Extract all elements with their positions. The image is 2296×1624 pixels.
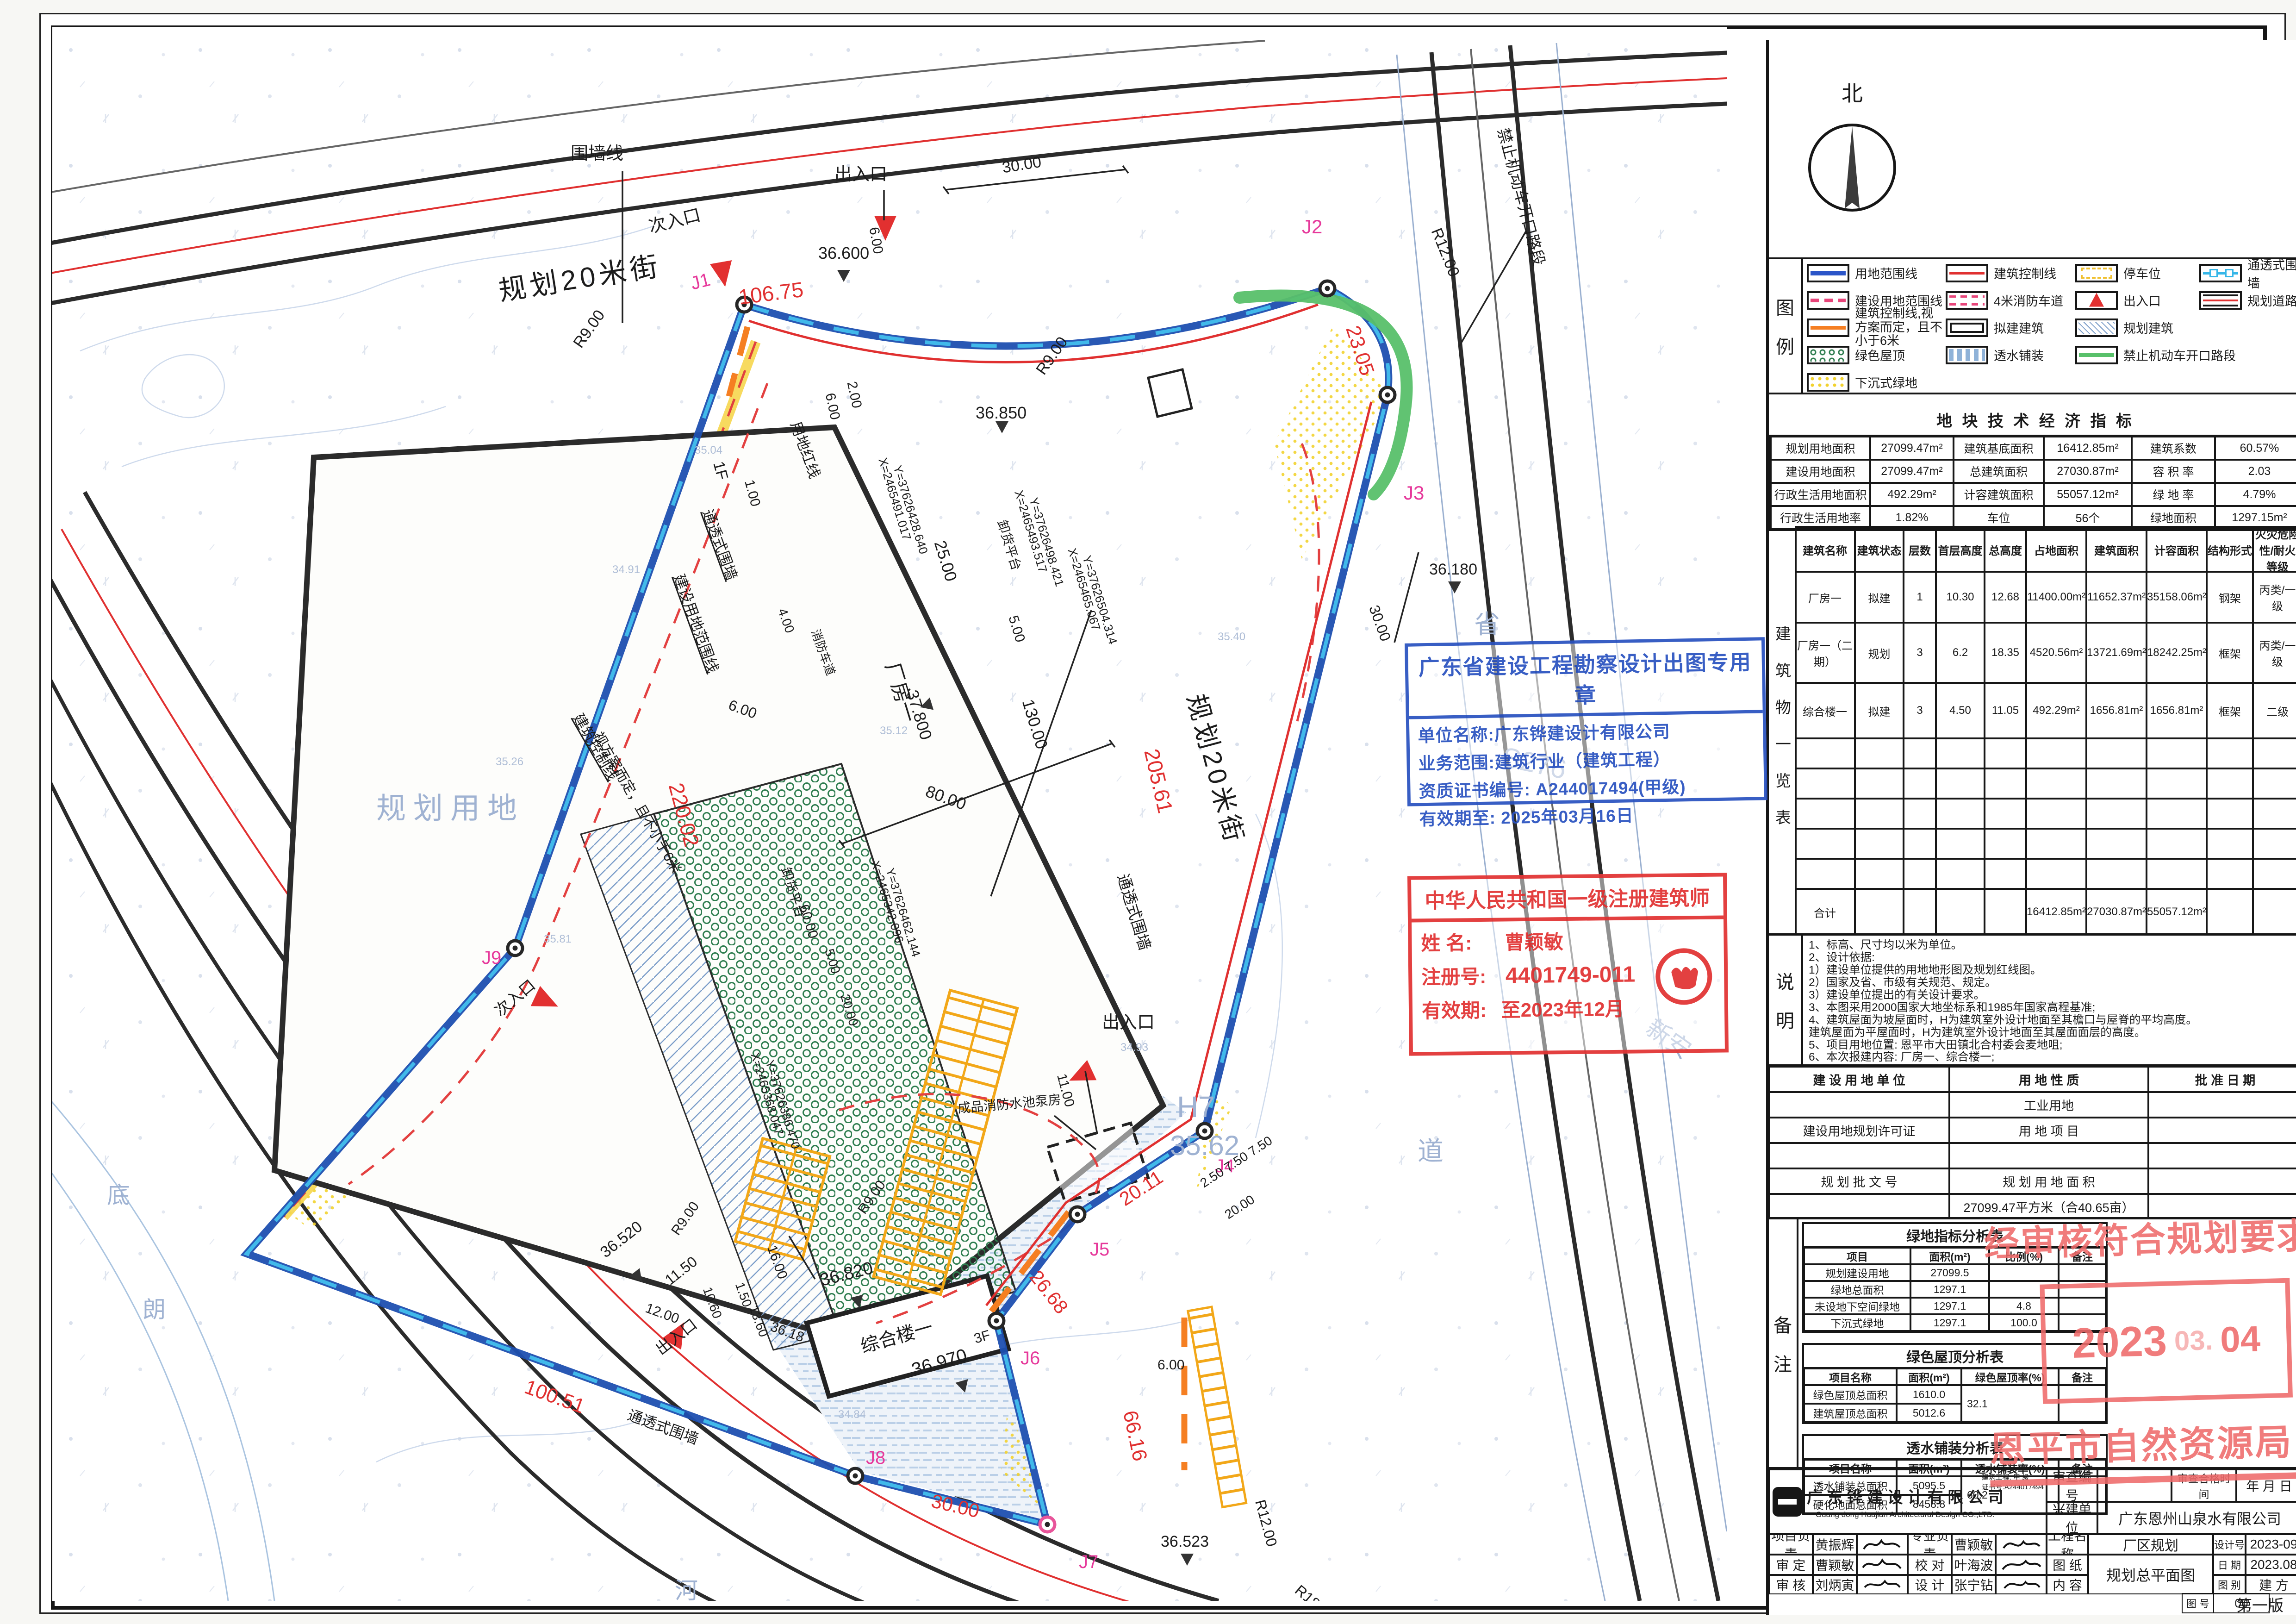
tech-cell: 2.03 (2215, 460, 2296, 483)
bl-cell: 综合楼一 (1795, 683, 1855, 738)
note-line: 1、标高、尺寸均以米为单位。 (1809, 939, 2296, 952)
lu-cell: 用 地 性 质 (1949, 1067, 2148, 1092)
tech-indicators: 地 块 技 术 经 济 指 标 规划用地面积27099.47m²建筑基底面积16… (1769, 406, 2296, 526)
bl-cell: 拟建 (1855, 683, 1904, 738)
note-line: 1）建设单位提供的用地地形图及规划红线图。 (1809, 964, 2296, 977)
plan-label: 省 (1474, 611, 1500, 638)
tech-cell: 建筑系数 (2132, 437, 2215, 460)
plan-label: J5 (1090, 1240, 1109, 1259)
note-line: 6、本次报建内容: 厂房一、综合楼一; (1809, 1051, 2296, 1064)
rt-cell: 面积(m²) (1897, 1368, 1961, 1385)
plan-label: J7 (1079, 1552, 1098, 1572)
tech-cell: 绿 地 率 (2132, 483, 2215, 506)
remark-side-char: 备 (1773, 1311, 1792, 1337)
title-block: 广 东 铧 建 设 计 有 限 公 司 Guang dong Huajian A… (1769, 1467, 2296, 1592)
role-label: 校 对 (1908, 1555, 1952, 1575)
lu-cell (2148, 1118, 2296, 1143)
bl-cell: 11652.37m² (2086, 572, 2147, 623)
bl-cell: 18.35 (1985, 623, 2026, 683)
planned-building-swatch-icon (2075, 319, 2118, 337)
signature (1996, 1555, 2047, 1575)
legend-item: 停车位 (2075, 264, 2199, 282)
architect-reg-no: 4401749-011 (1506, 962, 1636, 988)
bl-cell: 拟建 (1855, 572, 1904, 623)
bl-cell: 丙类/一级 (2253, 572, 2296, 623)
legend-label: 4米消防车道 (1994, 291, 2063, 309)
role-label: 专业负责 (1908, 1534, 1952, 1555)
rt-cell: 项目名称 (1804, 1368, 1897, 1385)
bl-cell: 1656.81m² (2086, 683, 2147, 738)
design-no-label: 设计号 (2213, 1534, 2246, 1555)
bl-total: 27030.87m² (2086, 889, 2147, 935)
project-name-label: 工程名称 (2047, 1534, 2088, 1555)
legend-item: 建筑控制线 (1946, 264, 2075, 282)
legend-label: 建筑控制线,视方案而定，且不小于6米 (1855, 307, 1943, 348)
bl-cell: 13721.69m² (2086, 623, 2147, 683)
approval-year: 2023 (2072, 1317, 2167, 1368)
legend-item: 透水铺装 (1946, 346, 2075, 364)
legend-label: 通透式围墙 (2247, 255, 2296, 291)
bl-cell: 492.29m² (2026, 683, 2086, 738)
building-list: 建 筑 物 一 览 表 建筑名称 建筑状态 层数 首层高度 总高度 占地面积 建… (1769, 526, 2296, 933)
bl-total-label: 合计 (1795, 889, 1855, 935)
legend-label: 规划道路 (2247, 291, 2296, 309)
bl-cell: 厂房一 (1795, 572, 1855, 623)
stamp-field-label: 姓 名: (1421, 932, 1472, 954)
plan-label: J8 (866, 1448, 885, 1468)
lu-cell (1769, 1194, 1949, 1219)
notes-side-label: 说 明 (1769, 936, 1803, 1064)
no-opening-swatch-icon (2075, 346, 2118, 364)
lu-cell (2148, 1092, 2296, 1118)
company-name-cn: 广 东 铧 建 设 计 有 限 公 司 (1807, 1485, 2004, 1507)
remark-side-label: 备 注 (1769, 1219, 1798, 1467)
role-label: 设 计 (1908, 1575, 1952, 1594)
bl-cell: 12.68 (1985, 572, 2026, 623)
lu-cell: 建设用地规划许可证 (1769, 1118, 1949, 1143)
role-label: 项目负责 (1769, 1534, 1813, 1555)
gt-cell: 未设地下空间绿地 (1804, 1298, 1910, 1314)
lu-cell (1769, 1092, 1949, 1118)
bl-cell: 1656.81m² (2147, 683, 2207, 738)
bl-cell: 框架 (2207, 623, 2253, 683)
owner-label: 兴建单位 (2047, 1502, 2097, 1534)
note-line: 3）建设单位提出的有关设计要求。 (1809, 989, 2296, 1002)
legend-item: 通透式围墙 (2199, 255, 2296, 291)
tech-cell: 27099.47m² (1870, 460, 1954, 483)
bl-header: 占地面积 (2026, 528, 2086, 572)
rt-cell: 建筑屋顶总面积 (1804, 1404, 1897, 1422)
approval-day: 04 (2220, 1318, 2261, 1361)
approval-text: 经审核符合规划要求 (1983, 1206, 2296, 1267)
bl-cell: 6.2 (1936, 623, 1985, 683)
legend-item: 出入口 (2075, 291, 2199, 310)
legend-item: 禁止机动车开口路段 (2075, 346, 2296, 364)
spot-elevation: 34.93 (1120, 1042, 1148, 1053)
gt-cell: 1297.1 (1910, 1281, 1989, 1298)
bl-cell: 4.50 (1936, 683, 1985, 738)
content-label: 内 容 (2047, 1575, 2088, 1594)
north-label: 北 (1801, 77, 1903, 107)
plan-label: J9 (482, 948, 501, 968)
bl-cell: 18242.25m² (2147, 623, 2207, 683)
stamp-title: 广东省建设工程勘察设计出图专用章 (1408, 640, 1763, 719)
rt-cell: 1610.0 (1897, 1385, 1961, 1404)
role-name: 张宁钻 (1952, 1575, 1996, 1594)
spot-elevation: 35.04 (695, 444, 722, 456)
legend-item: 下沉式绿地 (1807, 373, 1946, 392)
bl-header: 建筑名称 (1795, 528, 1855, 572)
bl-cell: 35158.06m² (2147, 572, 2207, 623)
notes-side-char: 明 (1776, 1006, 1794, 1033)
lu-cell (2148, 1168, 2296, 1194)
control-line-6m-swatch-icon (1807, 319, 1849, 337)
category-label: 图 别 (2213, 1575, 2246, 1594)
role-name: 叶海波 (1952, 1555, 1996, 1575)
gt-cell: 绿地总面积 (1804, 1281, 1910, 1298)
date-label: 日 期 (2213, 1555, 2246, 1575)
design-no: 2023-09 (2246, 1534, 2296, 1555)
legend-item: 绿色屋顶 (1807, 346, 1946, 364)
permeable-swatch-icon (1946, 346, 1988, 364)
tech-cell: 4.79% (2215, 483, 2296, 506)
note-line: 3、本图采用2000国家大地坐标系和1985年国家高程基准; (1809, 1002, 2296, 1014)
bl-cell: 丙类/一级 (2253, 623, 2296, 683)
signature (1857, 1555, 1908, 1575)
lu-cell (2148, 1143, 2296, 1168)
role-name: 黄振辉 (1813, 1534, 1857, 1555)
design-output-stamp: 广东省建设工程勘察设计出图专用章 单位名称:广东铧建设计有限公司 业务范围:建筑… (1405, 637, 1767, 806)
bl-cell: 4520.56m² (2026, 623, 2086, 683)
unloading-platform (1148, 369, 1192, 417)
tech-cell: 计容建筑面积 (1954, 483, 2044, 506)
date-value: 2023.08 (2246, 1555, 2296, 1575)
sheet-no-label: 图 号 (2182, 1593, 2214, 1613)
remark-side-char: 注 (1773, 1349, 1792, 1376)
note-line: 2、设计依据: (1809, 952, 2296, 964)
control-line-swatch-icon (1946, 264, 1988, 282)
tech-cell: 16412.85m² (2044, 437, 2132, 460)
gt-cell: 下沉式绿地 (1804, 1314, 1910, 1331)
bl-header: 总高度 (1985, 528, 2026, 572)
bl-header: 层数 (1904, 528, 1936, 572)
bl-cell: 1 (1904, 572, 1936, 623)
bl-total: 55057.12m² (2147, 889, 2207, 935)
gt-cell: 规划建设用地 (1804, 1264, 1910, 1281)
proposed-building-swatch-icon (1946, 319, 1988, 337)
role-name: 曹颖敏 (1813, 1555, 1857, 1575)
spot-elevation: 34.84 (838, 1409, 866, 1420)
bl-cell: 厂房一（二期） (1795, 623, 1855, 683)
legend-item: 规划道路 (2199, 291, 2296, 310)
legend-label: 透水铺装 (1994, 346, 2044, 364)
legend-item: 拟建建筑 (1946, 319, 2075, 337)
approval-month: 03. (2174, 1324, 2213, 1357)
legend-label: 出入口 (2123, 291, 2161, 309)
bl-total: 16412.85m² (2026, 889, 2086, 935)
legend-title-char: 例 (1776, 332, 1794, 359)
owner-name: 广东恩州山泉水有限公司 (2097, 1502, 2296, 1534)
company-logo-icon (1773, 1487, 1802, 1517)
spot-elevation: 35.81 (544, 933, 572, 945)
tech-cell: 规划用地面积 (1771, 437, 1870, 460)
building-list-side-label: 建 筑 物 一 览 表 (1769, 526, 1797, 933)
lu-cell: 用 地 项 目 (1949, 1118, 2148, 1143)
landuse-table: 建 设 用 地 单 位用 地 性 质批 准 日 期 工业用地 建设用地规划许可证… (1769, 1064, 2296, 1217)
legend-label: 禁止机动车开口路段 (2123, 346, 2236, 364)
legend-item: 4米消防车道 (1946, 291, 2075, 310)
legend-item: 规划建筑 (2075, 319, 2199, 337)
note-line: 5、项目用地位置: 恩平市大田镇北合村委会麦地咀; (1809, 1039, 2296, 1052)
fire-lane-swatch-icon (1946, 291, 1988, 310)
construction-boundary-swatch-icon (1807, 291, 1849, 310)
tech-cell: 55057.12m² (2044, 483, 2132, 506)
role-label: 审 定 (1769, 1555, 1813, 1575)
lu-cell: 规 划 用 地 面 积 (1949, 1168, 2148, 1194)
parking-swatch-icon (2075, 264, 2118, 282)
edition-label: 第一版 (2236, 1593, 2284, 1616)
signature (1996, 1534, 2047, 1555)
plan-label: 36.523 (1161, 1534, 1209, 1550)
category-value: 建 方 (2246, 1575, 2296, 1594)
spot-elevation: 35.12 (880, 725, 908, 737)
legend-label: 停车位 (2123, 264, 2161, 282)
plan-label: 36.600 (818, 244, 869, 262)
tech-cell: 容 积 率 (2132, 460, 2215, 483)
legend-label: 下沉式绿地 (1855, 373, 1917, 391)
notes-side-char: 说 (1776, 967, 1794, 994)
bl-header: 建筑面积 (2086, 528, 2147, 572)
gt-cell: 项目 (1804, 1248, 1910, 1264)
role-name: 曹颖敏 (1952, 1534, 1996, 1555)
plan-label: J6 (1020, 1349, 1040, 1368)
stamp-field-label: 注册号: (1421, 966, 1486, 988)
spot-elevation: 35.40 (1218, 631, 1245, 643)
signature (1996, 1575, 2047, 1594)
architect-name: 曹颖敏 (1505, 931, 1564, 953)
plan-label: 道 (1418, 1138, 1444, 1165)
tech-title: 地 块 技 术 经 济 指 标 (1769, 406, 2296, 435)
plan-label: 36.180 (1429, 562, 1477, 578)
bl-cell: 3 (1904, 623, 1936, 683)
site-boundary-swatch-icon (1807, 264, 1849, 282)
stamp-field-label: 有效期: (1422, 999, 1487, 1022)
project-name: 厂区规划 (2088, 1534, 2213, 1555)
tech-cell: 建筑基底面积 (1954, 437, 2044, 460)
bl-cell: 3 (1904, 683, 1936, 738)
note-line: 2）国家及省、市级有关规范、规定。 (1809, 977, 2296, 989)
lu-cell: 规 划 批 文 号 (1769, 1168, 1949, 1194)
north-arrow: 北 (1801, 77, 1903, 225)
plan-label: 6.00 (1157, 1358, 1184, 1373)
drawing-title: 规划总平面图 (2088, 1555, 2213, 1594)
fence-swatch-icon (2199, 264, 2242, 282)
rt-cell: 5012.6 (1897, 1404, 1961, 1422)
plan-label: 朗 (143, 1298, 166, 1322)
stamp-title: 中华人民共和国一级注册建筑师 (1411, 876, 1724, 922)
bl-header: 火灾危险性/耐火等级 (2253, 528, 2296, 572)
legend-label: 用地范围线 (1855, 264, 1917, 282)
green-roof-swatch-icon (1807, 346, 1849, 364)
plan-label: 36.850 (976, 404, 1027, 422)
plan-label: 出入口 (1102, 1014, 1155, 1032)
lu-cell: 批 准 日 期 (2148, 1067, 2296, 1092)
architect-stamp: 中华人民共和国一级注册建筑师 姓 名: 曹颖敏 注册号: 4401749-011… (1407, 873, 1729, 1056)
bl-header: 建筑状态 (1855, 528, 1904, 572)
legend-title-char: 图 (1776, 293, 1794, 320)
bl-header: 计容面积 (2147, 528, 2207, 572)
bl-cell: 规划 (1855, 623, 1904, 683)
entrance-swatch-icon (2075, 291, 2118, 310)
rt-cell: 绿色屋顶总面积 (1804, 1385, 1897, 1404)
gt-cell: 1297.1 (1910, 1298, 1989, 1314)
plan-label: J3 (1404, 483, 1424, 503)
legend-label: 绿色屋顶 (1855, 346, 1905, 364)
approval-org: 恩平市自然资源局 (1989, 1412, 2296, 1487)
architect-seal-icon (1654, 946, 1714, 1007)
legend-item: 建筑控制线,视方案而定，且不小于6米 (1807, 307, 1946, 348)
role-name: 刘炳寅 (1813, 1575, 1857, 1594)
legend-label: 规划建筑 (2123, 319, 2173, 337)
tech-cell: 行政生活用地面积 (1771, 483, 1870, 506)
drawing-sheet: { "compass_label": "北", "plan": { "label… (0, 0, 2296, 1624)
tech-cell: 27099.47m² (1870, 437, 1954, 460)
tech-cell: 建设用地面积 (1771, 460, 1870, 483)
role-label: 审 核 (1769, 1575, 1813, 1594)
note-line: 4、建筑屋面为坡屋面时，H为建筑室外设计地面至其檐口与屋脊的平均高度。 (1809, 1014, 2296, 1027)
bl-header: 结构形式 (2207, 528, 2253, 572)
architect-valid: 至2023年12月 (1501, 998, 1624, 1021)
bl-cell: 二级 (2253, 683, 2296, 738)
tech-cell: 492.29m² (1870, 483, 1954, 506)
signature (1857, 1575, 1908, 1594)
plan-label: 围墙线 (571, 145, 623, 163)
plan-label: H7 (1177, 1092, 1215, 1123)
notes: 说 明 1、标高、尺寸均以米为单位。 2、设计依据: 1）建设单位提供的用地地形… (1769, 933, 2296, 1064)
spot-elevation: 35.26 (496, 756, 523, 768)
plan-label: 底 (107, 1183, 130, 1208)
note-line: 建筑屋面为平屋面时，H为建筑室外设计地面至其屋面面层的高度。 (1809, 1027, 2296, 1039)
bl-header: 首层高度 (1936, 528, 1985, 572)
bl-cell: 11.05 (1985, 683, 2026, 738)
company-name-en: Guang dong Huajian Architectural Design … (1807, 1510, 2004, 1519)
plan-label: 河 (675, 1579, 698, 1601)
lu-cell: 工业用地 (1949, 1092, 2148, 1118)
tech-cell: 60.57% (2215, 437, 2296, 460)
lu-cell (1949, 1143, 2148, 1168)
lu-cell: 建 设 用 地 单 位 (1769, 1067, 1949, 1092)
legend-label: 拟建建筑 (1994, 319, 2044, 337)
planned-road-swatch-icon (2199, 291, 2242, 310)
bl-cell: 钢架 (2207, 572, 2253, 623)
bl-cell: 框架 (2207, 683, 2253, 738)
sheet-label: 图 纸 (2047, 1555, 2088, 1575)
tech-cell: 27030.87m² (2044, 460, 2132, 483)
legend-title: 图 例 (1769, 259, 1803, 393)
lu-cell (1769, 1143, 1949, 1168)
plan-label: 规划用地 (376, 793, 524, 824)
gt-cell: 面积(m²) (1910, 1248, 1989, 1264)
signature (1857, 1534, 1908, 1555)
bl-cell: 10.30 (1936, 572, 1985, 623)
plan-label: J2 (1302, 217, 1322, 237)
north-arrow-icon (1801, 107, 1903, 228)
bl-cell: 11400.00m² (2026, 572, 2086, 623)
plan-label: 出入口 (834, 166, 887, 184)
sunken-green-swatch-icon (1807, 373, 1849, 392)
tech-cell: 总建筑面积 (1954, 460, 2044, 483)
gt-cell: 27099.5 (1910, 1264, 1989, 1281)
approval-stamp: 经审核符合规划要求 2023 03. 04 恩平市自然资源局 (1983, 1206, 2296, 1486)
sheet-frame: 围墙线 次入口 规划20米街 106.75 36.600 出入口 6.00 30… (39, 13, 2286, 1614)
approval-date-box: 2023 03. 04 (2040, 1278, 2293, 1404)
plan-label: 35.62 (1170, 1131, 1239, 1160)
spot-elevation: 34.91 (612, 564, 640, 575)
legend-label: 建筑控制线 (1994, 264, 2056, 282)
legend-item: 用地范围线 (1807, 264, 1946, 282)
gt-cell: 1297.1 (1910, 1314, 1989, 1331)
legend: 图 例 用地范围线 建筑控制线 停车位 通透式围墙 建设用地范围线 4米消防车道… (1769, 257, 2296, 394)
